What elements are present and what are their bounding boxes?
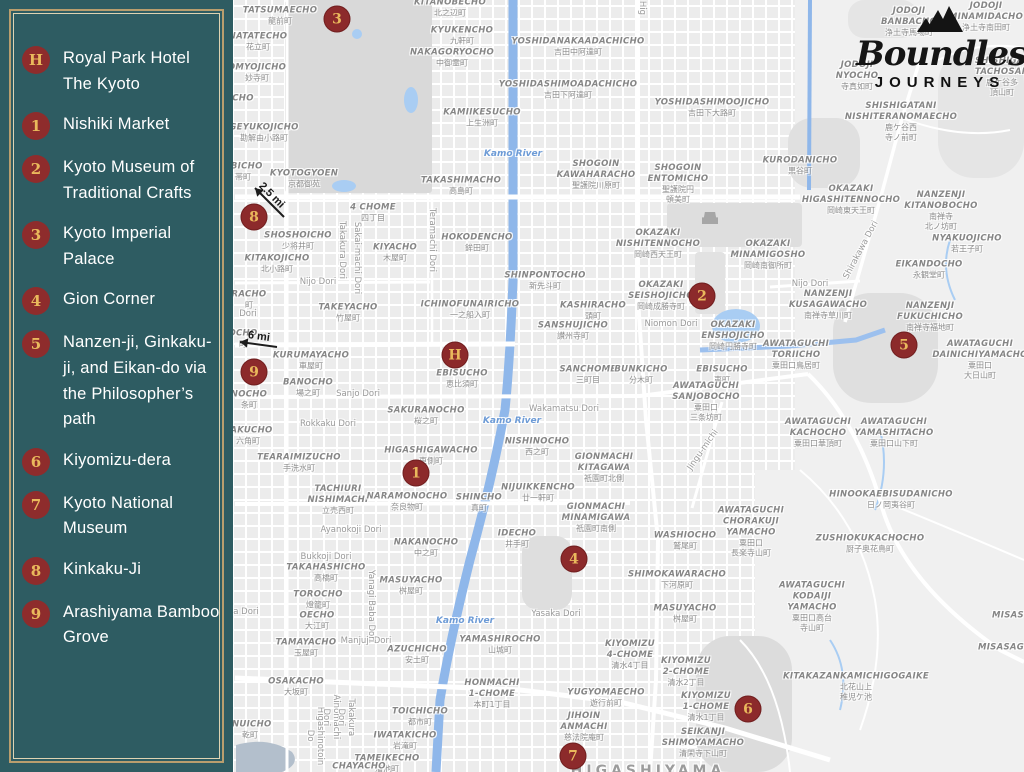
map-label: KURODANICHO黒谷町 — [763, 155, 838, 176]
map-label: TEARAIMIZUCHO手洗水町 — [257, 452, 341, 473]
map-label: SHISHIGATANI NISHITERANOMAECHO鹿ケ谷西 寺ノ前町 — [845, 101, 957, 143]
map-label: YOSHIDANAKAADACHICHO吉田中阿達町 — [511, 36, 644, 57]
map-label: TAKEYACHO竹屋町 — [318, 302, 377, 323]
mountains-icon — [917, 6, 963, 32]
map-label: Sanjo Dori — [336, 389, 380, 399]
map-label: WASHIOCHO鷲尾町 — [654, 530, 717, 551]
map-label: BANOCHO場之町 — [283, 377, 333, 398]
legend-item-label: Kiyomizu-dera — [63, 448, 171, 474]
map-marker-6[interactable]: 6 — [735, 696, 762, 723]
map-label: TOROCHO燈籠町 — [293, 589, 342, 610]
map-marker-H[interactable]: H — [442, 342, 469, 369]
legend-item-H: HRoyal Park Hotel The Kyoto — [22, 46, 221, 97]
map-label: MASUYACHO桝屋町 — [654, 603, 717, 624]
map-label: SANSHUJICHO讃州寺町 — [538, 320, 608, 341]
map-label: NANZENJI FUKUCHICHO南禅寺福地町 — [897, 301, 963, 333]
map-label: EIKANDOCHO永観堂町 — [895, 259, 962, 280]
map-label: Kamo River — [483, 416, 541, 426]
map-label: OMYOJICHO妙寺町 — [228, 62, 286, 83]
legend-item-2: 2Kyoto Museum of Traditional Crafts — [22, 155, 221, 206]
map-label: KIYOMIZU 4-CHOME清水4丁目 — [605, 639, 655, 671]
map-label: Niomon Dori — [644, 319, 697, 329]
map-label: OKAZAKI SEISHOJICHO岡崎成勝寺町 — [628, 280, 694, 312]
map-label: TACHIURI NISHIMACHI立売西町 — [308, 484, 369, 516]
map-label: ZUSHIOKUKACHOCHO厨子奥花鳥町 — [816, 533, 925, 554]
map-label: Takakura Dori — [336, 690, 356, 745]
map-marker-9[interactable]: 9 — [241, 359, 268, 386]
map-label: KIYOMIZU 2-CHOME清水2丁目 — [661, 656, 711, 688]
legend-marker-badge: 4 — [22, 287, 50, 315]
map-label: SHINCHO真町 — [456, 492, 502, 513]
map-label: IDECHO井手町 — [498, 528, 536, 549]
logo-wordmark: Boundless — [856, 37, 1024, 71]
map-label: Kamo River — [436, 616, 494, 626]
map-label: TAKAHASHICHO高橋町 — [286, 562, 365, 583]
map-label: Nijo Dori — [300, 277, 337, 287]
map-marker-8[interactable]: 8 — [241, 204, 268, 231]
map-label: MISASAG — [978, 642, 1024, 653]
legend-marker-badge: 9 — [22, 600, 50, 628]
map-label: MISAS — [992, 610, 1024, 621]
map-label: SHIMOKAWARACHO下河原町 — [628, 569, 726, 590]
map-label: Takakura Dori — [337, 221, 347, 279]
map-label: KITAKOJICHO北小路町 — [245, 253, 310, 274]
map-label: IWATAKICHO岩滝町 — [373, 730, 436, 751]
legend-item-label: Nanzen-ji, Ginkaku-ji, and Eikan-do via … — [63, 330, 221, 432]
map-label: Dori — [239, 309, 257, 319]
map-label: CHAYACHO — [332, 761, 386, 772]
map-label: NAKAGORYOCHO中御霊町 — [410, 47, 494, 68]
map-label: YOSHIDASHIMOADACHICHO吉田下阿達町 — [499, 79, 638, 100]
map-label: AWATAGUCHI DAINICHIYAMACHO粟田口 大日山町 — [932, 339, 1024, 381]
legend-marker-badge: 3 — [22, 221, 50, 249]
legend-marker-badge: 5 — [22, 330, 50, 358]
legend-item-3: 3Kyoto Imperial Palace — [22, 221, 221, 272]
boundless-journeys-logo: Boundless JOURNEYS — [856, 6, 1024, 91]
map-label: NIJUIKKENCHO廿一軒町 — [501, 482, 575, 503]
map-label: a Dori — [233, 607, 259, 617]
legend-marker-badge: 6 — [22, 448, 50, 476]
map-label: SAKURANOCHO桜之町 — [387, 405, 464, 426]
map-label: NOCHO条町 — [231, 389, 267, 410]
map-label: KIYACHO木屋町 — [373, 242, 417, 263]
map-label: TOICHICHO都市町 — [392, 706, 448, 727]
map-label: TATSUMAECHO龍前町 — [243, 5, 317, 26]
map-marker-2[interactable]: 2 — [689, 283, 716, 310]
map-label: GIONMACHI KITAGAWA祇園町北側 — [575, 452, 633, 484]
legend-item-6: 6Kiyomizu-dera — [22, 448, 221, 476]
map-label: KITAKAZANKAMICHIGOGAIKE北花山上 稚児ケ池 — [783, 671, 929, 702]
map-label: OKAZAKI NISHITENNOCHO岡崎西天王町 — [616, 228, 700, 260]
palace-pond — [404, 87, 418, 113]
map-label: Bukkoji Dori — [301, 552, 352, 562]
map-label: HOKODENCHO鉾田町 — [441, 232, 512, 253]
map-label: TAMAYACHO玉屋町 — [276, 637, 337, 658]
legend-item-label: Arashiyama Bamboo Grove — [63, 600, 221, 651]
legend-item-1: 1Nishiki Market — [22, 112, 221, 140]
map-label: KIYOMIZU 1-CHOME清水1丁目 — [681, 691, 731, 723]
legend-item-label: Nishiki Market — [63, 112, 169, 138]
map-label: OKAZAKI MINAMIGOSHO岡崎南御所町 — [731, 239, 806, 271]
legend-marker-badge: 2 — [22, 155, 50, 183]
map-label: NATATECHO花立町 — [229, 31, 288, 52]
map-label: Yanagi Baba Dori — [366, 570, 376, 642]
map-label: Kamo River — [484, 149, 542, 159]
map-label: OSAKACHO大坂町 — [268, 676, 324, 697]
distance-arrow: 6 mi — [230, 326, 287, 363]
map-label: SANCHOME三町目 — [559, 364, 616, 385]
map-label: EBISUCHO恵比須町 — [436, 368, 487, 389]
legend-item-label: Kyoto Museum of Traditional Crafts — [63, 155, 221, 206]
kyoto-tour-map: TATSUMAECHO龍前町NATATECHO花立町OMYOJICHO妙寺町CH… — [0, 0, 1024, 772]
map-label: ICHINOFUNAIRICHO一之船入町 — [421, 299, 520, 320]
svg-text:6 mi: 6 mi — [247, 329, 270, 344]
map-label: MASUYACHO桝屋町 — [380, 575, 443, 596]
map-label: 4 CHOME四丁目 — [350, 202, 396, 223]
map-label: SHOGOIN ENTOMICHO聖護院円 頓美町 — [648, 163, 709, 205]
map-label: GEYUKOJICHO勘解由小路町 — [229, 122, 298, 143]
map-label: KYUKENCHO九軒町 — [431, 25, 493, 46]
map-label: JIHOIN ANMACHI慈法院庵町 — [560, 711, 607, 743]
legend-item-label: Kyoto Imperial Palace — [63, 221, 221, 272]
map-label: NANZENJI KUSAGAWACHO南禅寺草川町 — [789, 289, 867, 321]
map-label: KITANOBECHO北之辺町 — [414, 0, 486, 19]
logo-subtitle: JOURNEYS — [856, 74, 1024, 91]
map-label: BUNKICHO分木町 — [614, 364, 667, 385]
map-label: HIGASHIGAWACHO東側町 — [384, 445, 478, 466]
map-label: RACHO町 — [232, 289, 267, 310]
map-label: KASHIRACHO頭町 — [560, 300, 626, 321]
legend-item-label: Gion Corner — [63, 287, 155, 313]
map-marker-5[interactable]: 5 — [891, 332, 918, 359]
map-label: AZUCHICHO安土町 — [387, 644, 446, 665]
map-label: HONMACHI 1-CHOME本町1丁目 — [464, 678, 519, 710]
map-label: AWATAGUCHI KACHOCHO粟田口華頂町 — [785, 417, 851, 449]
map-label: Hig — [637, 1, 647, 15]
legend-marker-badge: H — [22, 46, 50, 74]
map-label: AWATAGUCHI CHORAKUJI YAMACHO粟田口 長楽寺山町 — [718, 505, 784, 558]
legend-item-7: 7Kyoto National Museum — [22, 491, 221, 542]
map-label: GIONMACHI MINAMIGAWA祇園町南側 — [562, 502, 631, 534]
legend-marker-badge: 1 — [22, 112, 50, 140]
legend-item-label: Kyoto National Museum — [63, 491, 221, 542]
legend-item-label: Royal Park Hotel The Kyoto — [63, 46, 221, 97]
map-label: Rokkaku Dori — [300, 419, 356, 429]
map-label: YUGYOMAECHO遊行前町 — [567, 687, 645, 708]
map-label: KAMIIKESUCHO上生洲町 — [443, 107, 521, 128]
map-label: NYAKUOJICHO若王子町 — [932, 233, 1002, 254]
map-label: Yasaka Dori — [531, 609, 580, 619]
legend-panel: HRoyal Park Hotel The Kyoto1Nishiki Mark… — [0, 0, 233, 772]
map-label: INUICHO乾町 — [228, 719, 271, 740]
map-label: NAKANOCHO中之町 — [394, 537, 458, 558]
map-label: HIGASHIYAMA — [571, 763, 726, 772]
map-label: CHO — [232, 93, 253, 104]
map-label: SHOGOIN KAWAHARACHO聖護院川原町 — [557, 159, 636, 191]
map-label: NANZENJI KITANOBOCHO南禅寺 北ノ坊町 — [904, 190, 977, 232]
legend-marker-badge: 7 — [22, 491, 50, 519]
map-marker-7[interactable]: 7 — [560, 743, 587, 770]
map-label: Ayanokoji Dori — [321, 525, 382, 535]
legend-item-5: 5Nanzen-ji, Ginkaku-ji, and Eikan-do via… — [22, 330, 221, 432]
map-label: AWATAGUCHI KODAIJI YAMACHO粟田口高台 寺山町 — [779, 580, 845, 633]
map-label: Wakamatsu Dori — [529, 404, 599, 414]
legend-item-8: 8Kinkaku-Ji — [22, 557, 221, 585]
map-marker-1[interactable]: 1 — [403, 460, 430, 487]
map-label: YAMASHIROCHO山城町 — [459, 634, 540, 655]
legend-item-9: 9Arashiyama Bamboo Grove — [22, 600, 221, 651]
map-label: Sakai-machi Dori — [352, 222, 362, 294]
map-label: OKAZAKI ENSHOJICHO岡崎円勝寺町 — [701, 320, 764, 352]
map-label: Teramachi Dori — [427, 208, 437, 272]
map-label: HINOOKAEBISUDANICHO日ノ岡夷谷町 — [829, 489, 953, 510]
map-label: SHOSHOICHO少将井町 — [264, 230, 332, 251]
palace-pond — [352, 29, 362, 39]
map-marker-4[interactable]: 4 — [561, 546, 588, 573]
map-label: AWATAGUCHI TORIICHO粟田口鳥居町 — [763, 339, 829, 371]
map-label: OKAZAKI HIGASHITENNOCHO岡崎東天王町 — [802, 184, 900, 216]
legend-item-label: Kinkaku-Ji — [63, 557, 141, 583]
map-label: Nijo Dori — [792, 279, 829, 289]
map-label: OECHO大江町 — [299, 610, 334, 631]
map-label: NISHINOCHO西之町 — [505, 436, 570, 457]
map-label: SHINPONTOCHO新先斗町 — [504, 270, 585, 291]
map-label: AWATAGUCHI YAMASHITACHO粟田口山下町 — [855, 417, 934, 449]
map-label: SEIKANJI SHIMOYAMACHO清閑寺下山町 — [662, 727, 744, 759]
map-label: NARAMONOCHO奈良物町 — [367, 491, 448, 512]
map-label: TAKASHIMACHO高島町 — [421, 175, 501, 196]
legend-list: HRoyal Park Hotel The Kyoto1Nishiki Mark… — [22, 46, 221, 651]
map-marker-3[interactable]: 3 — [324, 6, 351, 33]
legend-marker-badge: 8 — [22, 557, 50, 585]
map-label: YOSHIDASHIMOOJICHO吉田下大路町 — [655, 97, 770, 118]
legend-item-4: 4Gion Corner — [22, 287, 221, 315]
map-label: AWATAGUCHI SANJOBOCHO粟田口 三条坊町 — [672, 381, 740, 423]
